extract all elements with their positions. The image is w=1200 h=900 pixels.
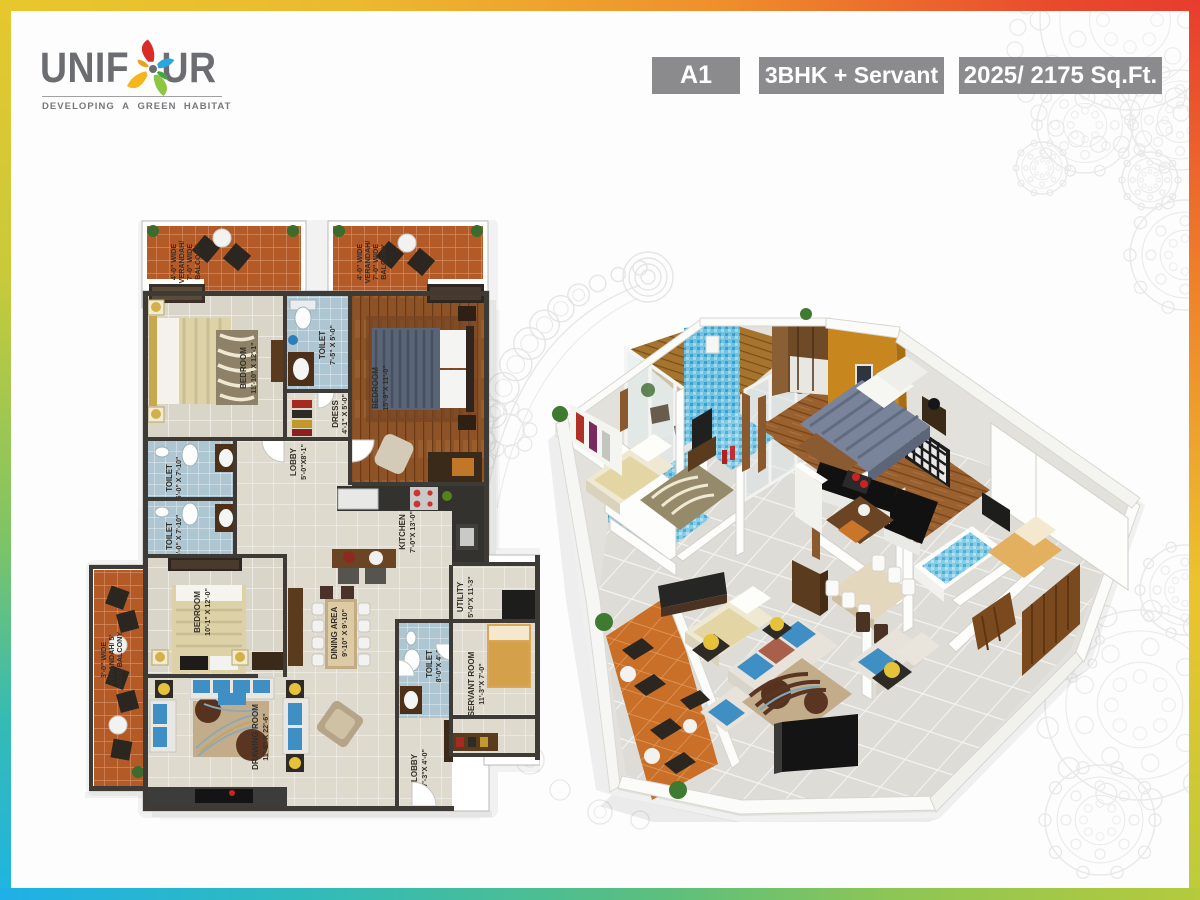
svg-text:TOILET: TOILET xyxy=(165,522,174,550)
svg-text:10'-1" X 12'-0": 10'-1" X 12'-0" xyxy=(203,588,212,636)
svg-text:BALCONY: BALCONY xyxy=(379,244,388,280)
svg-text:SERVANT ROOM: SERVANT ROOM xyxy=(467,651,476,716)
svg-text:DRAWING ROOM: DRAWING ROOM xyxy=(251,704,260,770)
svg-text:BALCONY: BALCONY xyxy=(193,244,202,280)
svg-text:DINING AREA: DINING AREA xyxy=(330,606,339,659)
svg-text:TOILET: TOILET xyxy=(318,331,327,359)
svg-text:7'-3"X 4'-0": 7'-3"X 4'-0" xyxy=(420,749,429,787)
svg-text:5'-0"X8'-1": 5'-0"X8'-1" xyxy=(299,444,308,480)
svg-text:11'-3"X 7'-0": 11'-3"X 7'-0" xyxy=(477,663,486,704)
svg-text:BEDROOM: BEDROOM xyxy=(371,367,380,409)
svg-text:11'-6" X 22'-6": 11'-6" X 22'-6" xyxy=(261,713,270,760)
svg-text:UTILITY: UTILITY xyxy=(456,581,465,612)
svg-text:TOILET: TOILET xyxy=(425,650,434,678)
svg-text:15'-9"X 11'-0": 15'-9"X 11'-0" xyxy=(381,365,390,410)
svg-text:5'-0" X 7'-10": 5'-0" X 7'-10" xyxy=(176,515,183,558)
svg-text:LOBBY: LOBBY xyxy=(289,447,298,476)
svg-text:4'-1" X 5'-0": 4'-1" X 5'-0" xyxy=(340,394,349,434)
svg-text:5'-0"X 11'-3": 5'-0"X 11'-3" xyxy=(466,576,475,617)
svg-text:BEDROOM: BEDROOM xyxy=(193,591,202,633)
svg-text:WIDE BALCONY: WIDE BALCONY xyxy=(115,632,124,689)
svg-text:TOILET: TOILET xyxy=(165,464,174,492)
svg-text:DRESS: DRESS xyxy=(331,400,340,428)
svg-text:5'-0" X 7'-10": 5'-0" X 7'-10" xyxy=(176,457,183,500)
svg-text:BEDROOM: BEDROOM xyxy=(239,347,248,389)
svg-text:9'-10" X 9'-10": 9'-10" X 9'-10" xyxy=(340,609,349,657)
svg-text:7'-0"X 13'-0": 7'-0"X 13'-0" xyxy=(408,511,417,553)
svg-text:7'-5" X 5'-0": 7'-5" X 5'-0" xyxy=(328,325,337,365)
svg-text:KITCHEN: KITCHEN xyxy=(398,514,407,550)
svg-text:LOBBY: LOBBY xyxy=(410,753,419,782)
svg-text:11'-10" X 12'-1": 11'-10" X 12'-1" xyxy=(249,342,258,393)
